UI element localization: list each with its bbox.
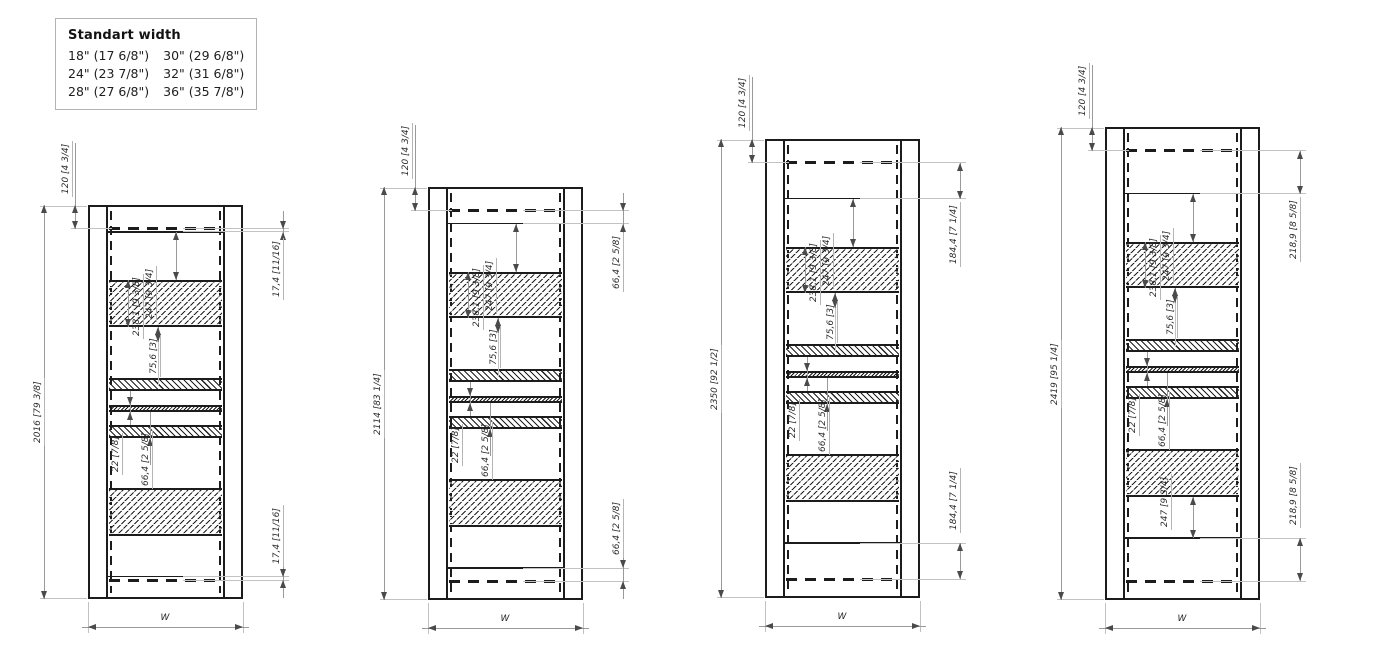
- bottom-opening-dimension-label: 247 [9 3/4]: [1161, 474, 1172, 530]
- seal-dashed-line-left: [1127, 133, 1130, 594]
- bottom-gap-dimension-label: 218,9 [8 5/8]: [1290, 463, 1301, 528]
- extension-line: [1200, 150, 1306, 151]
- dimension-arrow: [1089, 143, 1095, 151]
- center-rail-band: [1126, 366, 1239, 373]
- extension-line: [1200, 538, 1306, 539]
- dimension-arrow: [1089, 127, 1095, 135]
- rail-dimension-label: 22 [7/8]: [1129, 394, 1140, 436]
- opening-dimension-label: 247 [9 3/4]: [1163, 228, 1174, 284]
- extension-line: [1057, 128, 1104, 129]
- stile-line-left: [1123, 129, 1125, 598]
- dimension-line: [1092, 65, 1093, 151]
- slat-band-lower: [1126, 386, 1239, 399]
- top-gap-dimension-label: 218,9 [8 5/8]: [1290, 197, 1301, 262]
- dimension-arrow: [1297, 186, 1303, 194]
- extension-line: [1057, 599, 1104, 600]
- seal-dashed-line-right: [1236, 133, 1239, 594]
- dimension-arrow: [1190, 497, 1196, 505]
- slat-band-upper: [1126, 339, 1239, 352]
- extension-line: [1200, 193, 1306, 194]
- dimension-arrow: [1190, 194, 1196, 202]
- dimension-arrow: [1105, 625, 1113, 631]
- dimension-arrow: [1297, 538, 1303, 546]
- width-dimension-label: W: [1178, 615, 1187, 624]
- door-frame-drawing-4: 2419 [95 1/4]120 [4 3/4]218,9 [8 5/8]218…: [0, 0, 1400, 670]
- dimension-arrow: [1297, 573, 1303, 581]
- band-height-dimension-label: 238,1 [9 3/8]: [1150, 236, 1161, 301]
- dimension-arrow: [1144, 358, 1150, 366]
- dimension-line: [1099, 628, 1266, 629]
- dimension-arrow: [1190, 234, 1196, 242]
- spacer-dimension-label: 66,4 [2 5/8]: [1159, 391, 1170, 450]
- dimension-arrow: [1058, 592, 1064, 600]
- stile-line-right: [1240, 129, 1242, 598]
- extension-line: [1200, 581, 1306, 582]
- dimension-arrow: [1144, 373, 1150, 381]
- dimension-arrow: [1058, 127, 1064, 135]
- top-rail-dimension-label: 120 [4 3/4]: [1079, 63, 1090, 119]
- height-dimension-label: 2419 [95 1/4]: [1051, 340, 1062, 408]
- glass-panel-band-lower: [1126, 449, 1239, 497]
- drawings-layer: 2016 [79 3/8]120 [4 3/4]17,4 [11/16]17,4…: [0, 0, 1400, 670]
- dimension-arrow: [1190, 530, 1196, 538]
- dimension-arrow: [1297, 151, 1303, 159]
- drawing-sheet: Standart width 18" (17 6/8") 30" (29 6/8…: [0, 0, 1400, 670]
- dimension-arrow: [1142, 242, 1148, 250]
- dimension-arrow: [1142, 280, 1148, 288]
- shelf-dimension-label: 75,6 [3]: [1167, 297, 1178, 339]
- dimension-arrow: [1252, 625, 1260, 631]
